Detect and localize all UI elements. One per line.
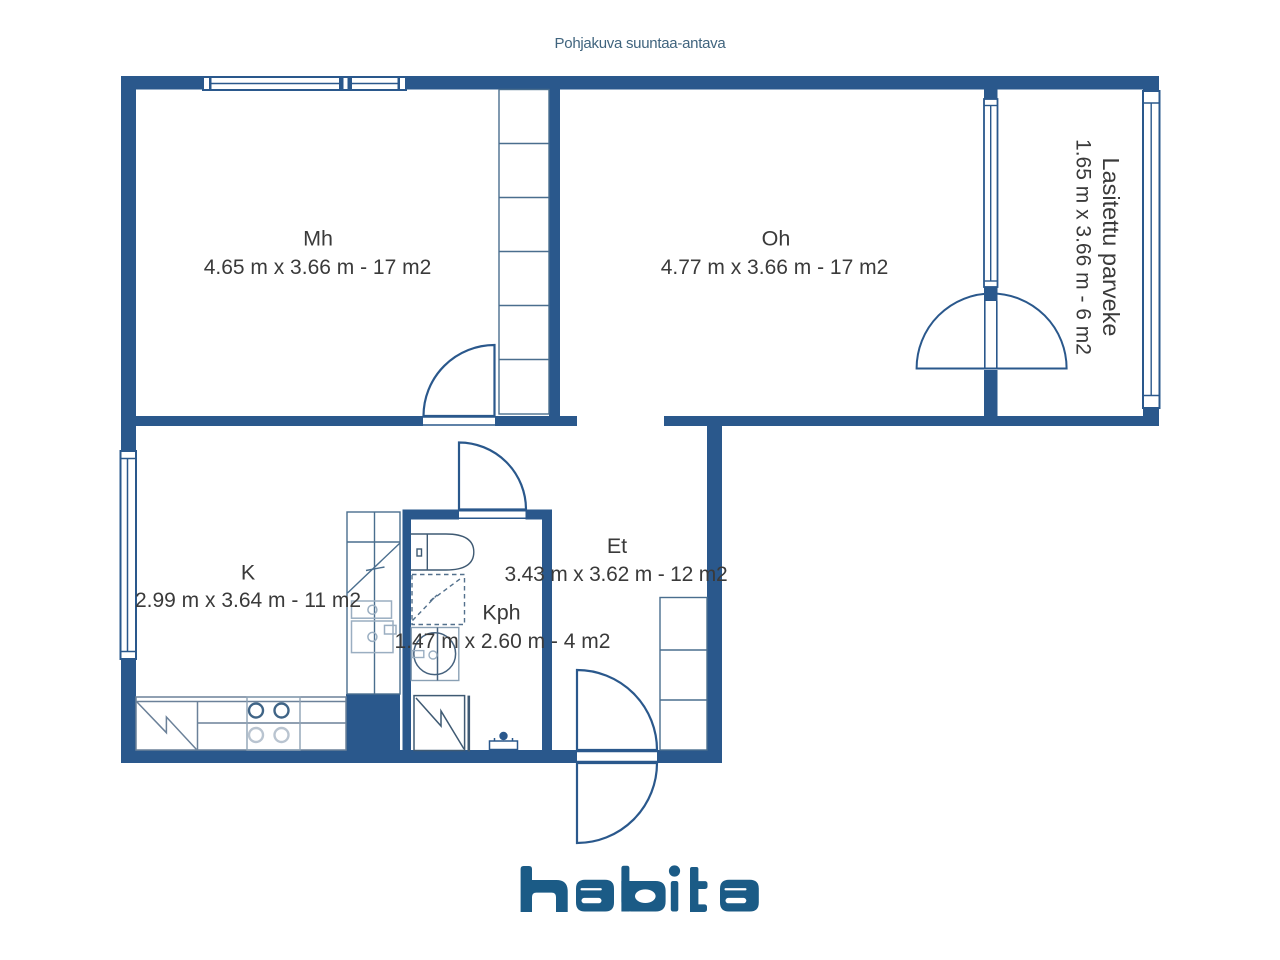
- svg-text:4.77 m x 3.66 m - 17 m2: 4.77 m x 3.66 m - 17 m2: [661, 256, 889, 279]
- svg-text:Oh: Oh: [762, 227, 791, 251]
- svg-text:1.65 m x 3.66 m - 6 m2: 1.65 m x 3.66 m - 6 m2: [1072, 139, 1095, 355]
- svg-text:1.47 m x 2.60 m - 4 m2: 1.47 m x 2.60 m - 4 m2: [395, 630, 611, 653]
- svg-text:Lasitettu parveke: Lasitettu parveke: [1098, 158, 1124, 337]
- svg-text:Kph: Kph: [482, 601, 520, 625]
- svg-text:K: K: [241, 561, 256, 585]
- svg-text:Et: Et: [607, 534, 627, 558]
- svg-text:4.65 m x 3.66 m - 17 m2: 4.65 m x 3.66 m - 17 m2: [204, 256, 432, 279]
- svg-text:Pohjakuva suuntaa-antava: Pohjakuva suuntaa-antava: [555, 35, 727, 52]
- svg-text:Mh: Mh: [303, 227, 333, 251]
- svg-text:2.99 m x 3.64 m - 11 m2: 2.99 m x 3.64 m - 11 m2: [135, 589, 361, 612]
- svg-text:3.43 m x 3.62 m - 12 m2: 3.43 m x 3.62 m - 12 m2: [505, 563, 728, 586]
